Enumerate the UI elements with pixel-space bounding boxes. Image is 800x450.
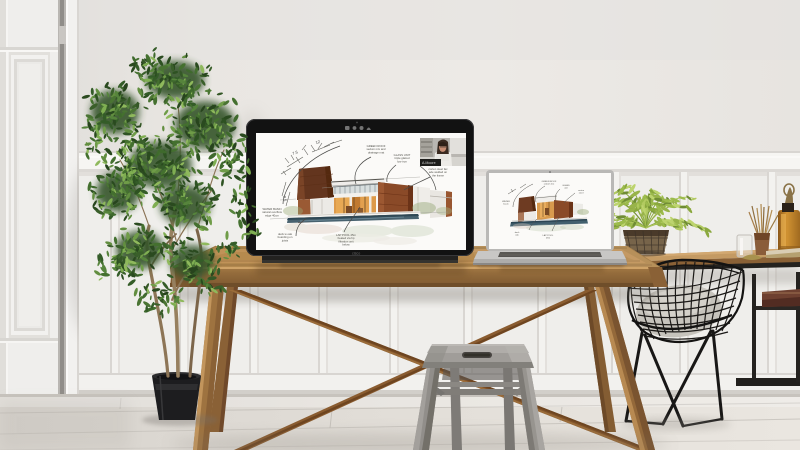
svg-text:steel: steel — [579, 192, 584, 195]
svg-text:sedum mix: sedum mix — [544, 184, 555, 186]
svg-text:drainage mat: drainage mat — [368, 150, 385, 154]
svg-text:unit: unit — [564, 187, 568, 190]
svg-text:joists: joists — [281, 238, 289, 242]
svg-text:the frame: the frame — [432, 173, 444, 177]
svg-text:below: below — [342, 243, 350, 247]
svg-text:cisco: cisco — [352, 252, 360, 256]
svg-text:A.Moore: A.Moore — [422, 161, 436, 165]
svg-text:edge 40cm: edge 40cm — [265, 213, 280, 217]
svg-text:basin: basin — [503, 204, 509, 206]
svg-text:low iron: low iron — [397, 159, 407, 163]
svg-text:25m: 25m — [546, 238, 550, 240]
